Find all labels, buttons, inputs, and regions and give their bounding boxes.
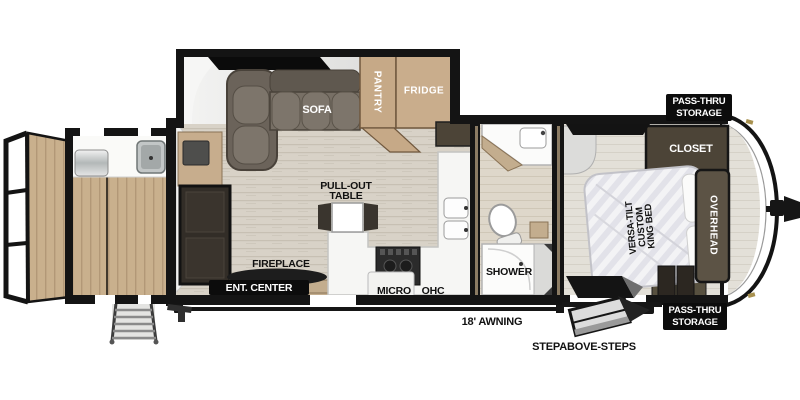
rear-ladder: [110, 303, 159, 345]
pass-thru-storage-lower-label: PASS-THRU STORAGE: [663, 303, 727, 330]
bedroom-window: [566, 124, 650, 135]
pass-thru-front-line2: STORAGE: [666, 108, 732, 120]
table-chair-left: [318, 203, 331, 231]
pass-thru-lower-line1: PASS-THRU: [663, 305, 727, 317]
slideout-window: [208, 57, 331, 70]
shower-label: SHOWER: [486, 266, 532, 278]
pass-thru-storage-front-label: PASS-THRU STORAGE: [666, 94, 732, 121]
rear-garage: [72, 135, 168, 297]
awning-rail: [180, 307, 560, 311]
steps-label: STEPABOVE-STEPS: [532, 341, 636, 353]
bed-bench: [677, 266, 694, 296]
sofa-label: SOFA: [302, 104, 331, 116]
water-heater: [75, 150, 108, 176]
king-bed-label: VERSA-TILT CUSTOM KING BED: [624, 199, 657, 255]
fireplace-label: FIREPLACE: [252, 258, 310, 270]
floorplan: SOFA PANTRY FRIDGE PULL-OUT TABLE FIREPL…: [0, 0, 800, 400]
pull-out-table-label: PULL-OUT TABLE: [320, 181, 371, 201]
floorplan-drawing: [0, 0, 800, 400]
fridge-label: FRIDGE: [404, 86, 444, 97]
pass-thru-front-line1: PASS-THRU: [666, 96, 732, 108]
kitchen-ohc-cabinet: [436, 122, 472, 146]
pantry-label: PANTRY: [372, 71, 383, 113]
micro-label: MICRO: [377, 285, 411, 297]
bed-bench: [658, 266, 675, 296]
table-chair-right: [364, 203, 378, 231]
ohc-label: OHC: [422, 285, 445, 297]
overhead-label: OVERHEAD: [708, 195, 719, 255]
entry-landing: [566, 276, 634, 298]
ent-center-label: ENT. CENTER: [209, 280, 309, 295]
rear-ramp-door: [6, 133, 70, 302]
pull-out-table: [332, 203, 363, 232]
pass-thru-lower-line2: STORAGE: [663, 317, 727, 329]
awning-label: 18' AWNING: [462, 316, 523, 328]
closet-label: CLOSET: [669, 143, 712, 155]
pull-out-table-label-line2: TABLE: [329, 190, 362, 202]
